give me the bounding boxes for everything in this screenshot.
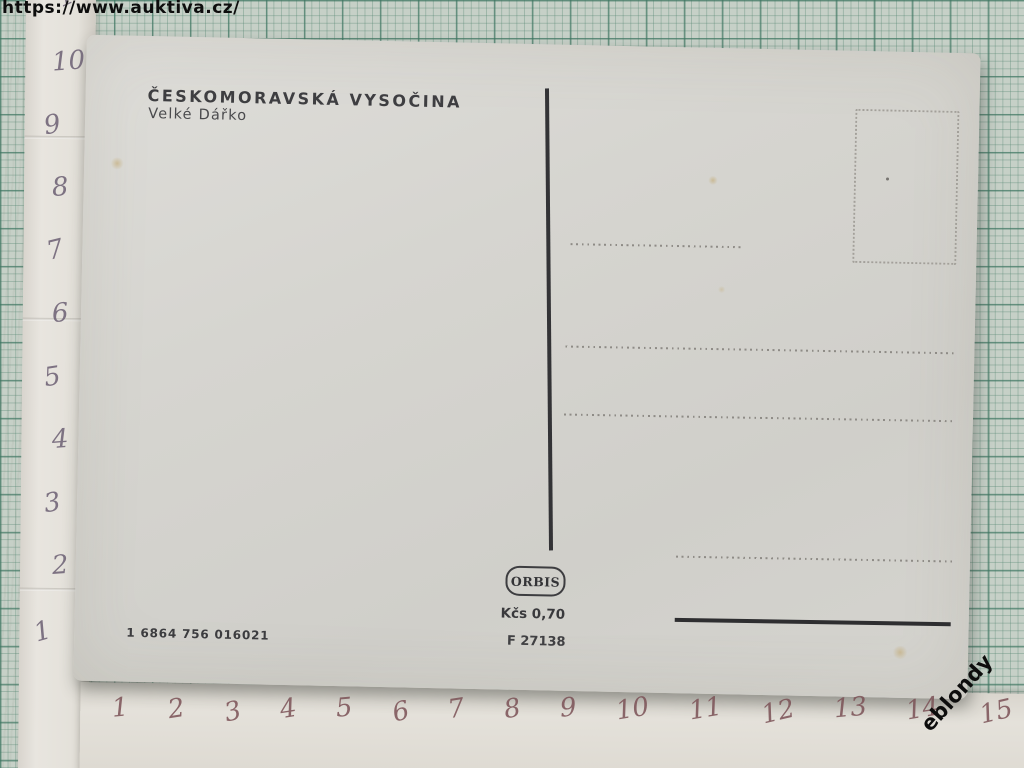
watermark-url: https://www.auktiva.cz/ — [2, 0, 240, 18]
speck — [886, 177, 889, 180]
handwritten-ruler-number: 4 — [278, 693, 299, 725]
photo-scene: ČESKOMORAVSKÁ VYSOČINA Velké Dářko ORBIS… — [0, 0, 1024, 768]
handwritten-ruler-number: 3 — [42, 487, 63, 519]
address-line-solid — [675, 618, 951, 626]
handwritten-ruler-number: 13 — [832, 692, 868, 725]
address-line — [564, 413, 956, 422]
catalog-code: F 27138 — [486, 633, 586, 650]
handwritten-ruler-number: 8 — [502, 693, 523, 725]
handwritten-ruler-number: 4 — [51, 424, 70, 455]
handwritten-ruler-number: 2 — [166, 693, 187, 725]
handwritten-ruler-number: 7 — [446, 693, 467, 725]
postcard-price: Kčs 0,70 — [483, 605, 583, 623]
handwritten-ruler-number: 5 — [42, 361, 63, 393]
stamp-box — [852, 109, 959, 265]
bottom-ruler: 123456789101112131415 — [112, 694, 1012, 724]
address-line — [565, 345, 957, 354]
print-code: 1 6864 756 016021 — [126, 626, 269, 643]
divider-line — [545, 88, 553, 550]
handwritten-ruler-number: 6 — [390, 695, 413, 728]
handwritten-ruler-number: 11 — [686, 692, 723, 727]
address-line — [676, 556, 952, 563]
handwritten-ruler-number: 1 — [111, 692, 130, 723]
postcard-subtitle: Velké Dářko — [148, 106, 247, 124]
handwritten-ruler-number: 3 — [222, 695, 245, 728]
handwritten-ruler-number: 9 — [42, 109, 63, 141]
left-ruler: 1110987654321 — [44, 0, 90, 644]
handwritten-ruler-number: 5 — [335, 692, 354, 723]
handwritten-ruler-number: 6 — [51, 298, 70, 329]
paper-stain — [718, 286, 726, 293]
handwritten-ruler-number: 2 — [51, 550, 70, 581]
handwritten-ruler-number: 10 — [51, 45, 86, 77]
paper-stain — [708, 176, 718, 185]
paper-stain — [892, 646, 908, 659]
paper-stain — [110, 157, 124, 169]
handwritten-ruler-number: 9 — [559, 692, 578, 723]
handwritten-ruler-number: 7 — [44, 234, 67, 267]
address-line — [571, 243, 743, 248]
publisher-logo-text: ORBIS — [511, 573, 561, 589]
handwritten-ruler-number: 10 — [614, 692, 651, 727]
publisher-logo: ORBIS — [505, 566, 566, 597]
postcard-back: ČESKOMORAVSKÁ VYSOČINA Velké Dářko ORBIS… — [73, 35, 980, 700]
handwritten-ruler-number: 8 — [51, 172, 70, 203]
